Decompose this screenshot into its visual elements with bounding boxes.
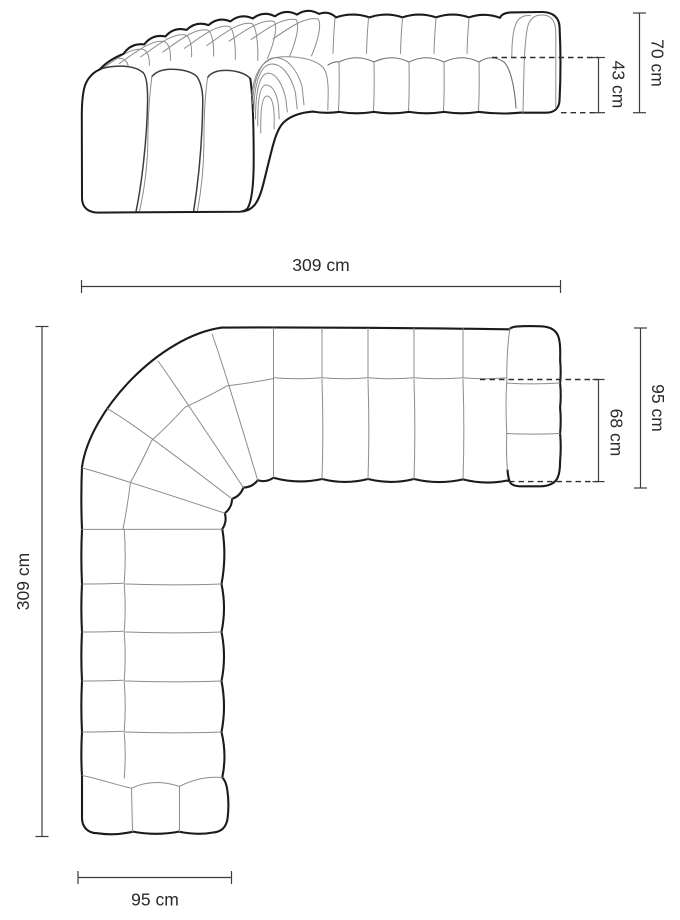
svg-text:95 cm: 95 cm [131, 890, 179, 910]
svg-text:70 cm: 70 cm [648, 39, 668, 87]
svg-text:309 cm: 309 cm [13, 553, 33, 610]
svg-text:68 cm: 68 cm [607, 409, 627, 457]
svg-text:43 cm: 43 cm [609, 61, 629, 109]
svg-text:95 cm: 95 cm [648, 384, 668, 432]
svg-text:309 cm: 309 cm [292, 255, 349, 275]
